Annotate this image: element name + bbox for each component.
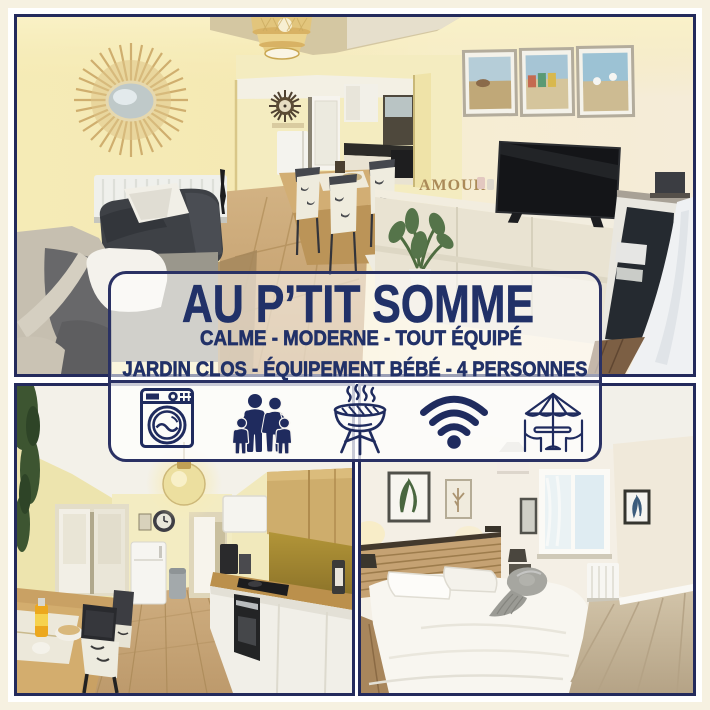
svg-text:JARDIN CLOS - ÉQUIPEMENT BÉBÉ: JARDIN CLOS - ÉQUIPEMENT BÉBÉ - 4 PERSON… xyxy=(123,356,588,381)
svg-text:CALME - MODERNE - TOUT ÉQUIPÉ: CALME - MODERNE - TOUT ÉQUIPÉ xyxy=(200,327,522,350)
svg-text:AU P’TIT SOMME: AU P’TIT SOMME xyxy=(182,275,534,334)
